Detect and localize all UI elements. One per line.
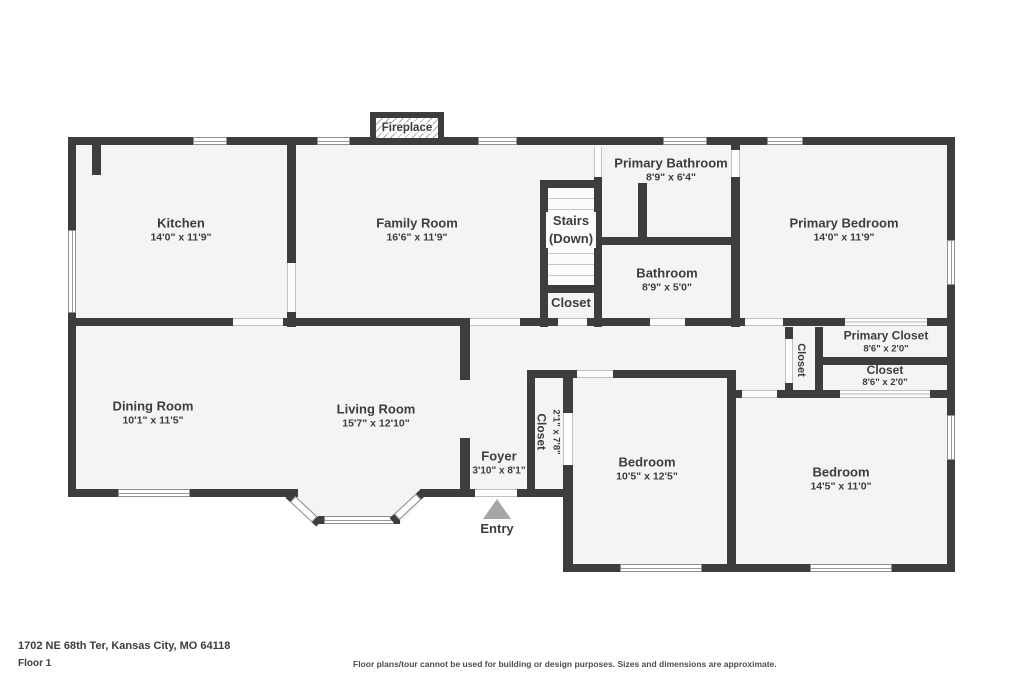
room-dims: 16'6" x 11'9" <box>376 232 458 245</box>
wall <box>563 370 573 572</box>
room-dims: 10'1" x 11'5" <box>113 415 194 428</box>
wall <box>815 327 823 398</box>
room-dims: 15'7" x 12'10" <box>337 418 416 431</box>
room-label-bedroom-left: Bedroom 10'5" x 12'5" <box>616 455 678 484</box>
window <box>767 137 803 145</box>
door-opening <box>558 318 587 326</box>
window <box>947 415 955 460</box>
door-opening <box>577 370 613 378</box>
room-name: Living Room <box>337 402 416 418</box>
room-name: Bedroom <box>616 455 678 471</box>
window <box>118 489 190 497</box>
room-name: Stairs <box>546 212 596 230</box>
room-name: (Down) <box>546 230 596 248</box>
room-label-bedroom-right: Bedroom 14'5" x 11'0" <box>810 465 871 494</box>
window <box>324 516 394 524</box>
wall <box>68 318 233 326</box>
window <box>193 137 227 145</box>
floor-plan: Fireplace Kitchen 14'0" x 11'9" Family R… <box>0 0 1024 682</box>
wall <box>540 180 548 327</box>
room-name: Kitchen <box>150 216 211 232</box>
wall <box>785 327 793 339</box>
room-label-hall-closet: Closet <box>793 343 809 377</box>
wall <box>638 183 647 240</box>
room-name: Foyer <box>472 449 525 465</box>
wall <box>460 318 470 380</box>
window <box>317 137 350 145</box>
room-label-family-room: Family Room 16'6" x 11'9" <box>376 216 458 245</box>
door-opening <box>650 318 685 326</box>
room-dims: 8'9" x 6'4" <box>614 172 727 185</box>
room-name: Bathroom <box>636 266 697 282</box>
room-dims: 8'9" x 5'0" <box>636 282 697 295</box>
wall <box>92 145 101 175</box>
room-label-primary-bedroom: Primary Bedroom 14'0" x 11'9" <box>789 216 898 245</box>
room-label-living-room: Living Room 15'7" x 12'10" <box>337 402 416 431</box>
floor-number-text: Floor 1 <box>18 658 51 669</box>
wall <box>287 145 296 263</box>
wall <box>540 285 602 293</box>
room-name: Closet <box>534 414 550 451</box>
room-name: Closet <box>793 343 809 377</box>
room-label-foyer: Foyer 3'10" x 8'1" <box>472 449 525 478</box>
door-opening <box>742 390 777 398</box>
fireplace: Fireplace <box>370 112 444 145</box>
wall <box>283 318 470 326</box>
room-name: Bedroom <box>810 465 871 481</box>
room-name: Closet <box>862 364 907 377</box>
entry-threshold <box>475 489 517 497</box>
window <box>478 137 517 145</box>
room-label-dining-room: Dining Room 10'1" x 11'5" <box>113 399 194 428</box>
door-opening <box>731 150 740 177</box>
room-label-entry-closet: Closet 2'1" x 7'8" <box>534 409 563 454</box>
room-name: Closet <box>551 295 591 311</box>
room-label-stairs-closet: Closet <box>551 295 591 311</box>
room-dims: 8'6" x 2'0" <box>844 344 929 355</box>
room-dims: 14'0" x 11'9" <box>789 232 898 245</box>
wall <box>598 237 740 245</box>
door-opening <box>470 318 520 326</box>
room-dims: 14'5" x 11'0" <box>810 481 871 494</box>
wall <box>68 137 76 497</box>
window <box>810 564 892 572</box>
room-name: Dining Room <box>113 399 194 415</box>
room-name: Primary Closet <box>844 328 929 344</box>
door-opening <box>287 263 296 312</box>
room-label-primary-bathroom: Primary Bathroom 8'9" x 6'4" <box>614 156 727 185</box>
room-name: Family Room <box>376 216 458 232</box>
window <box>663 137 707 145</box>
room-label-kitchen: Kitchen 14'0" x 11'9" <box>150 216 211 245</box>
wall <box>460 438 470 497</box>
door-opening <box>785 339 793 383</box>
sliding-door <box>845 318 927 326</box>
room-label-closet-right: Closet 8'6" x 2'0" <box>862 364 907 388</box>
wall <box>540 180 602 188</box>
door-opening <box>594 147 602 177</box>
window <box>947 240 955 285</box>
window <box>620 564 702 572</box>
room-name: Primary Bedroom <box>789 216 898 232</box>
room-dims: 14'0" x 11'9" <box>150 232 211 245</box>
door-opening <box>563 413 573 465</box>
room-dims: 3'10" x 8'1" <box>472 465 525 478</box>
room-dims: 10'5" x 12'5" <box>616 471 678 484</box>
room-dims: 2'1" x 7'8" <box>550 409 563 454</box>
wall <box>727 370 736 572</box>
entry-arrow-icon <box>483 499 511 519</box>
room-label-primary-closet: Primary Closet 8'6" x 2'0" <box>844 328 929 355</box>
window <box>68 230 76 313</box>
room-name: Primary Bathroom <box>614 156 727 172</box>
room-label-bathroom: Bathroom 8'9" x 5'0" <box>636 266 697 295</box>
address-text: 1702 NE 68th Ter, Kansas City, MO 64118 <box>18 640 230 652</box>
door-opening <box>233 318 283 326</box>
fireplace-label: Fireplace <box>381 122 434 134</box>
wall <box>594 177 602 327</box>
disclaimer-text: Floor plans/tour cannot be used for buil… <box>353 659 777 669</box>
entry-label: Entry <box>480 521 513 536</box>
room-label-stairs: Stairs (Down) <box>546 212 596 248</box>
wall <box>947 137 955 572</box>
door-opening <box>745 318 783 326</box>
room-dims: 8'6" x 2'0" <box>862 377 907 388</box>
sliding-door <box>840 390 930 398</box>
